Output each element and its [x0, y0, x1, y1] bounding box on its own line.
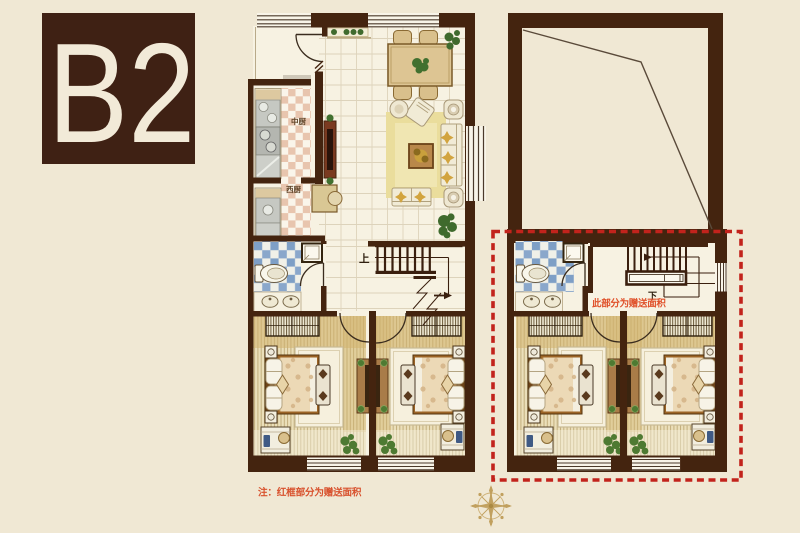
- svg-text:西厨: 西厨: [286, 185, 301, 194]
- svg-text:B2: B2: [48, 14, 196, 172]
- svg-text:注：红框部分为赠送面积: 注：红框部分为赠送面积: [258, 487, 362, 499]
- svg-text:上: 上: [359, 252, 370, 265]
- svg-text:此部分为赠送面积: 此部分为赠送面积: [592, 298, 666, 310]
- svg-text:中厨: 中厨: [291, 116, 306, 126]
